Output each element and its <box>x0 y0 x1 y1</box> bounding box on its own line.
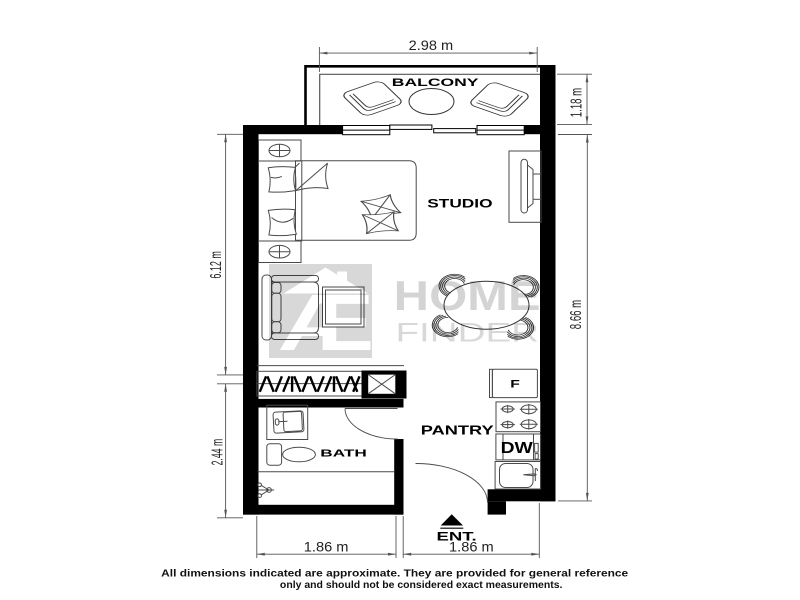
svg-text:8.66 m: 8.66 m <box>568 300 585 329</box>
svg-text:only and should not be conside: only and should not be considered exact … <box>280 580 563 591</box>
svg-text:1.18 m: 1.18 m <box>569 88 586 117</box>
svg-text:STUDIO: STUDIO <box>427 197 492 210</box>
svg-text:FINDER: FINDER <box>396 318 540 348</box>
svg-text:2.98 m: 2.98 m <box>409 38 454 53</box>
svg-text:2.44 m: 2.44 m <box>210 439 227 466</box>
svg-text:6.12 m: 6.12 m <box>208 251 225 279</box>
svg-text:PANTRY: PANTRY <box>421 422 494 437</box>
svg-text:All dimensions indicated are a: All dimensions indicated are approximate… <box>161 568 629 579</box>
svg-text:DW: DW <box>501 440 534 457</box>
svg-text:BATH: BATH <box>320 449 367 460</box>
svg-text:1.86 m: 1.86 m <box>304 539 349 554</box>
svg-text:F: F <box>510 378 520 390</box>
svg-text:BALCONY: BALCONY <box>392 77 480 89</box>
svg-text:HOME: HOME <box>394 272 541 319</box>
svg-text:1.86 m: 1.86 m <box>449 539 494 554</box>
